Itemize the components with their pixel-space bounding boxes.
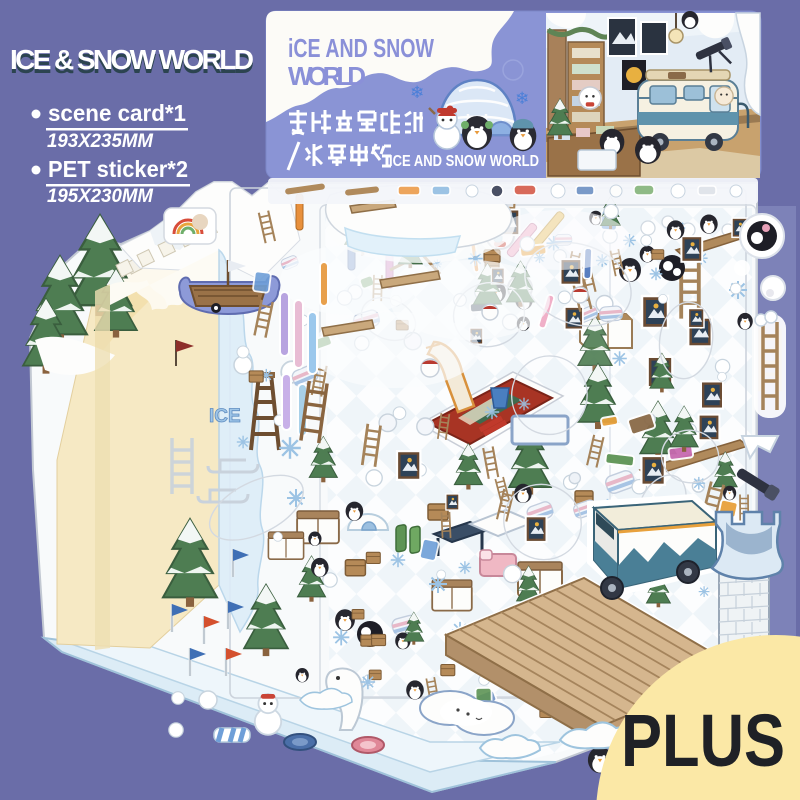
svg-text:193X235MM: 193X235MM [47,130,154,152]
svg-text:scene card*1: scene card*1 [48,100,186,126]
svg-text:PET sticker*2: PET sticker*2 [48,156,188,182]
svg-text:ICE AND SNOW WORLD: ICE AND SNOW WORLD [389,153,539,170]
svg-text:WORLD: WORLD [288,61,366,91]
svg-text:ICE: ICE [209,406,241,427]
svg-text:PLUS: PLUS [621,699,785,782]
svg-text:ICE & SNOW WORLD: ICE & SNOW WORLD [10,44,255,75]
svg-text:❄: ❄ [515,89,529,108]
svg-text:iCE AND SNOW: iCE AND SNOW [288,33,434,63]
svg-text:❄: ❄ [410,83,424,102]
svg-text:195X230MM: 195X230MM [47,185,154,207]
